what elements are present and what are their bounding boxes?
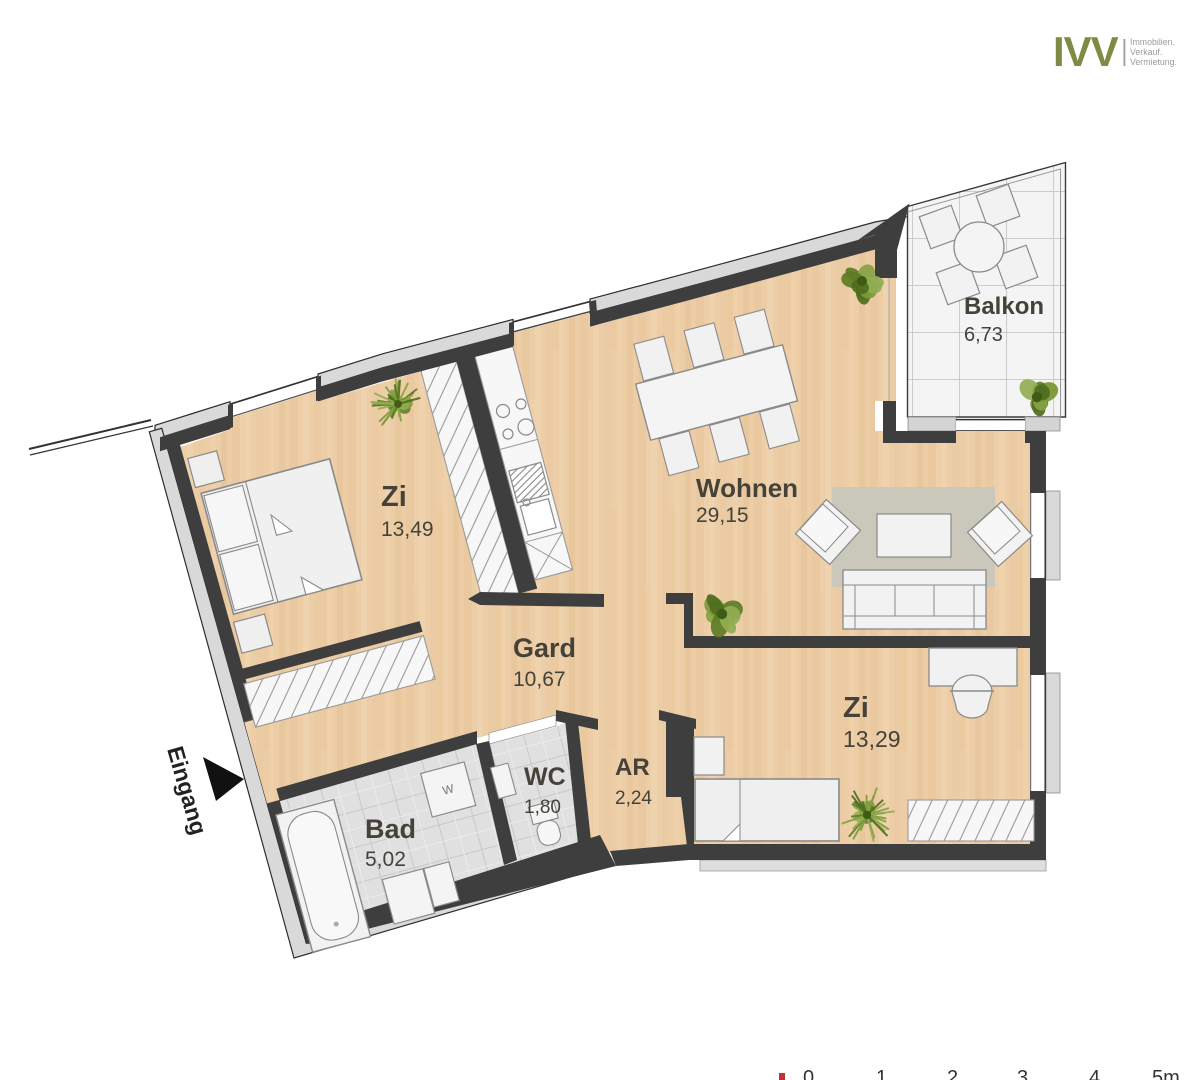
svg-text:1,80: 1,80 [524, 797, 561, 818]
svg-text:Gard: Gard [513, 633, 576, 663]
svg-text:1: 1 [876, 1067, 887, 1080]
svg-text:Immobilien.: Immobilien. [1130, 37, 1175, 47]
svg-text:Bad: Bad [365, 814, 416, 844]
svg-text:Wohnen: Wohnen [696, 473, 798, 503]
svg-text:0: 0 [803, 1067, 814, 1080]
svg-text:IVV: IVV [1053, 28, 1119, 75]
svg-text:Balkon: Balkon [964, 293, 1044, 320]
svg-text:10,67: 10,67 [513, 668, 566, 691]
svg-text:Zi: Zi [843, 692, 869, 724]
svg-text:13,29: 13,29 [843, 726, 901, 752]
svg-text:4: 4 [1089, 1067, 1100, 1080]
svg-text:WC: WC [524, 763, 566, 791]
svg-text:29,15: 29,15 [696, 504, 749, 527]
svg-text:3: 3 [1017, 1067, 1028, 1080]
svg-text:2: 2 [947, 1067, 958, 1080]
svg-text:13,49: 13,49 [381, 518, 434, 541]
svg-text:5m: 5m [1152, 1067, 1180, 1080]
svg-text:Verkauf.: Verkauf. [1130, 47, 1162, 57]
svg-text:AR: AR [615, 754, 650, 781]
svg-text:2,24: 2,24 [615, 788, 652, 809]
svg-text:Zi: Zi [381, 481, 407, 513]
svg-text:6,73: 6,73 [964, 324, 1003, 346]
svg-text:5,02: 5,02 [365, 848, 406, 871]
svg-text:Vermietung.: Vermietung. [1130, 57, 1177, 67]
